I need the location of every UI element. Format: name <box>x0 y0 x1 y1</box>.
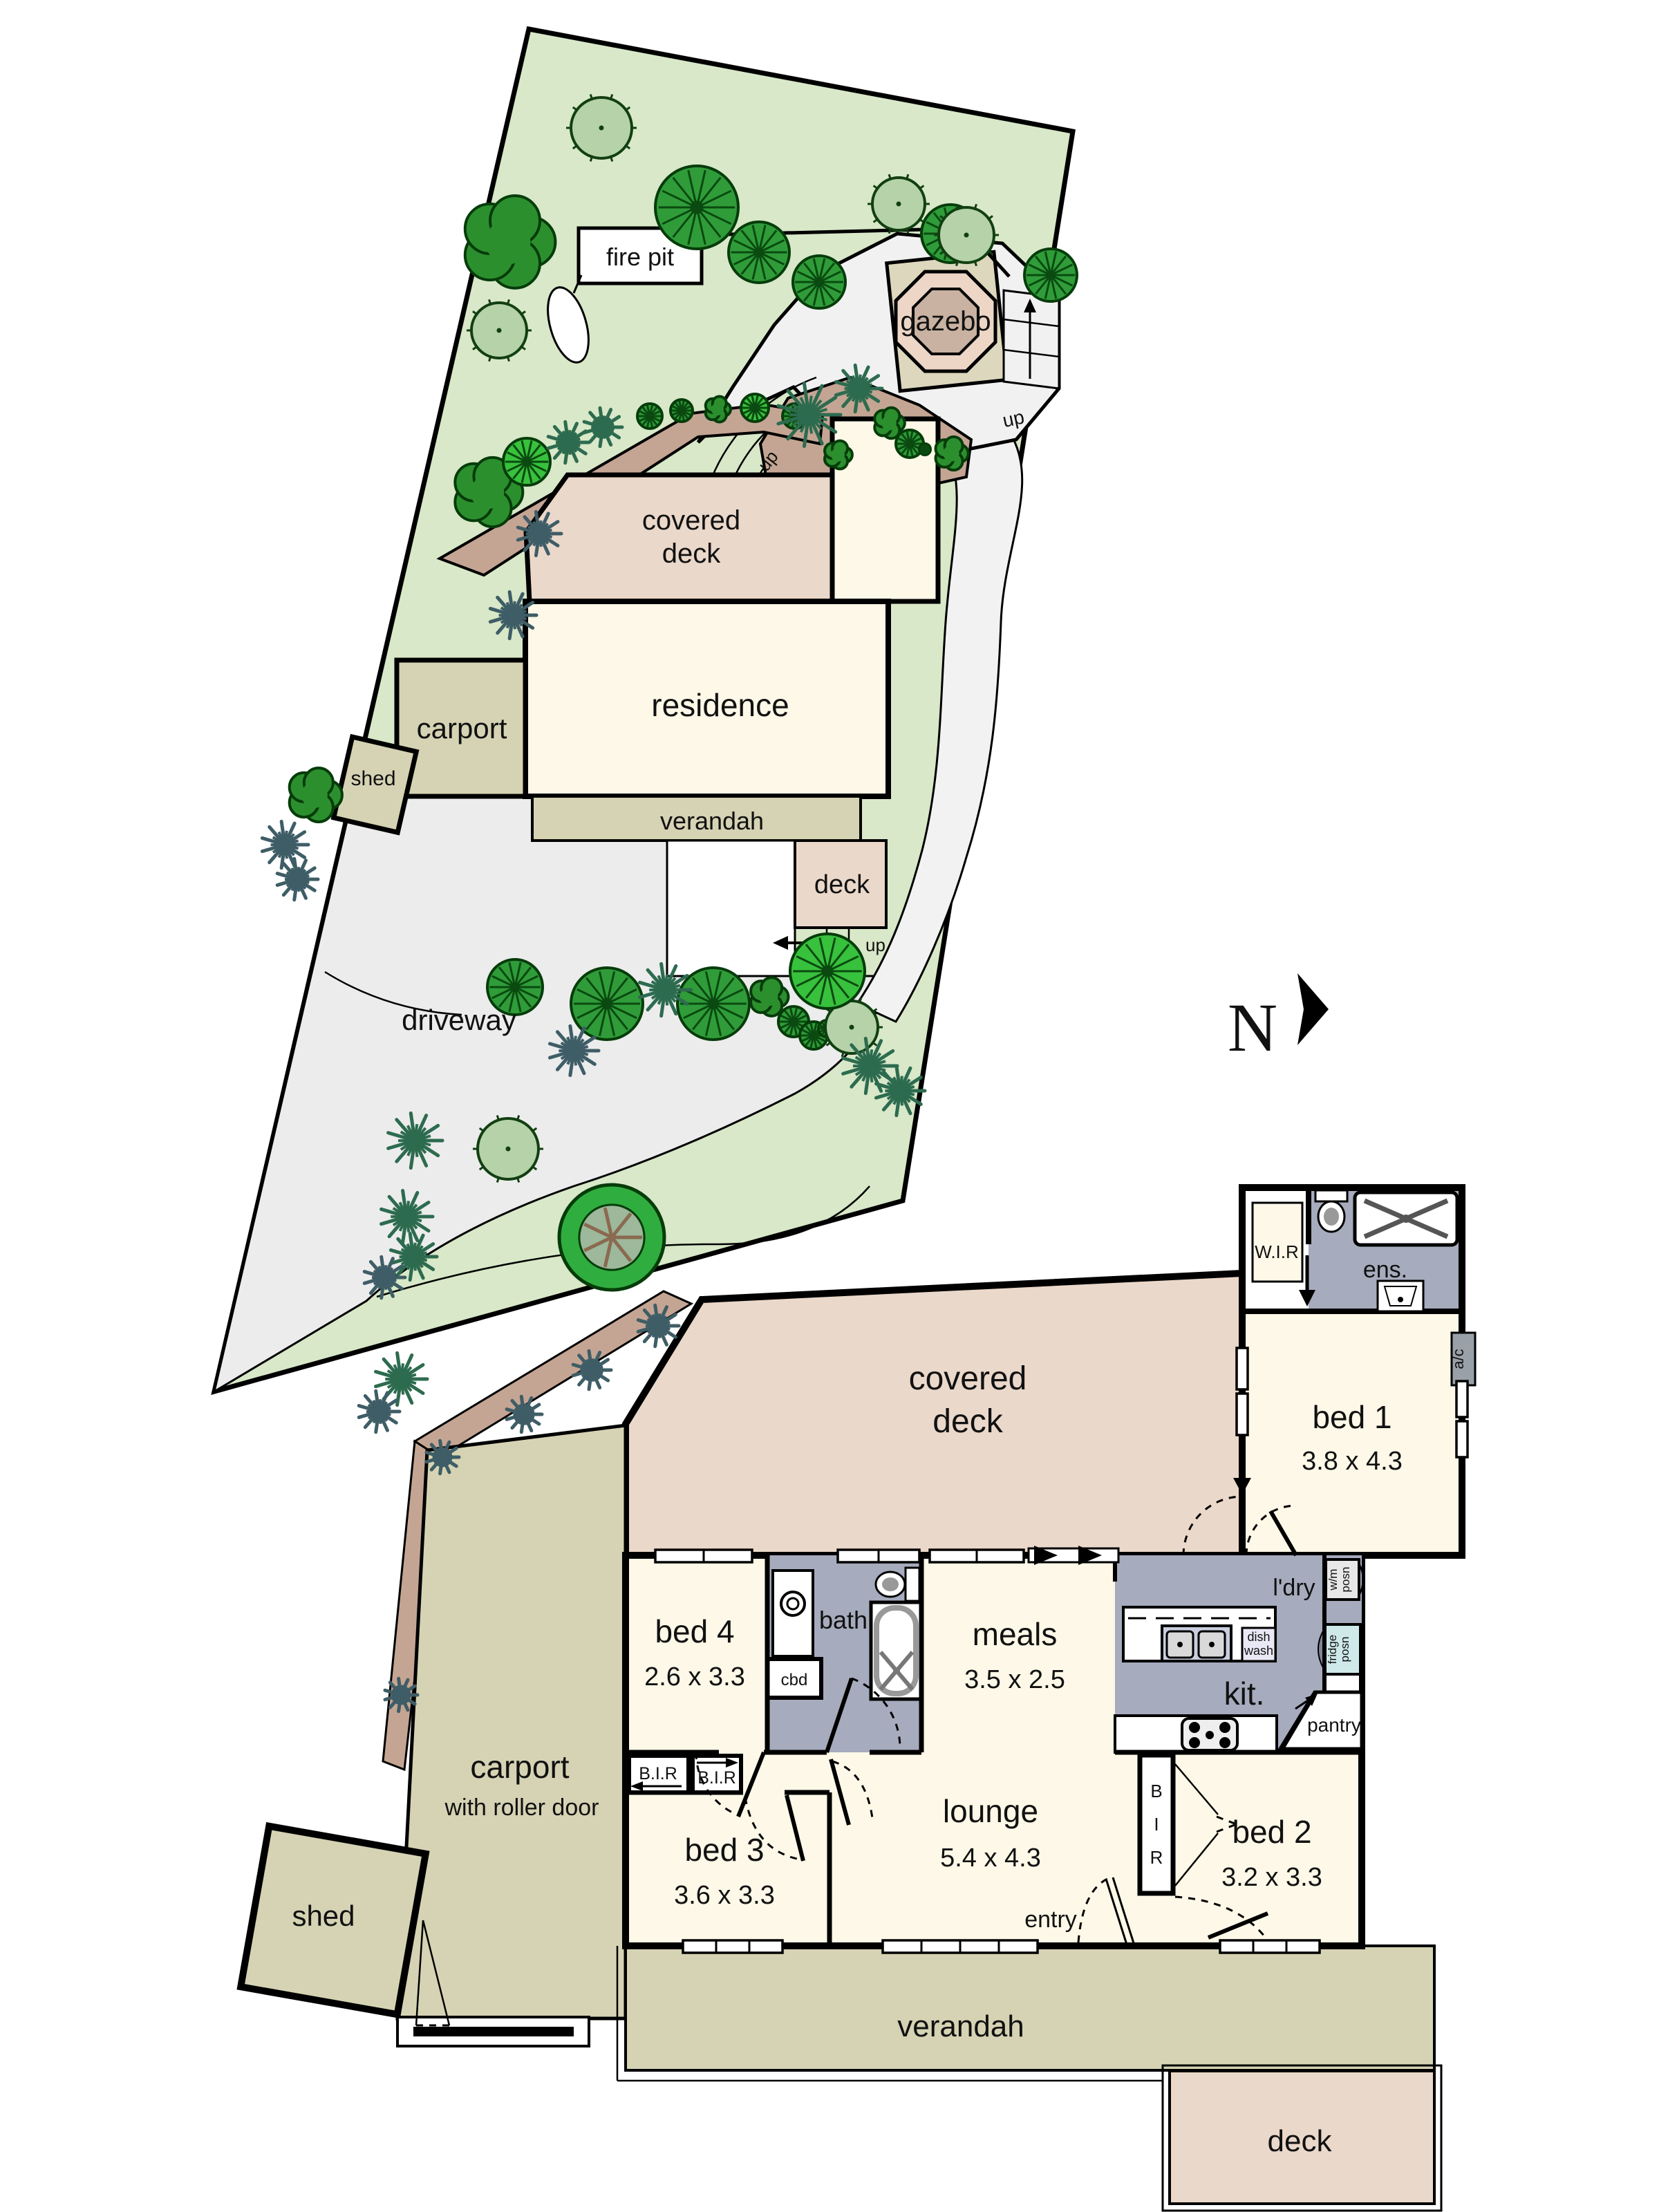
wm-label2: posn <box>1339 1567 1352 1593</box>
tree-icon <box>793 256 845 308</box>
north-indicator: N <box>1228 973 1329 1066</box>
bed3-label: bed 3 <box>684 1832 764 1868</box>
fp-covered-deck-label1: covered <box>909 1360 1027 1397</box>
up-deck-label: up <box>865 935 885 955</box>
bath-label: bath <box>819 1606 868 1634</box>
ac-label: a/c <box>1450 1349 1467 1369</box>
site-shed-label: shed <box>350 767 395 790</box>
roller-door <box>397 2017 589 2046</box>
tree-icon <box>825 441 852 469</box>
window-icon <box>1237 1348 1248 1389</box>
fridge-label2: posn <box>1338 1637 1351 1662</box>
stove-bench <box>1115 1716 1277 1752</box>
floorplan-page: fire pit gazebo up up covered deck resid… <box>0 0 1659 2212</box>
tree-icon <box>262 821 308 868</box>
wir-label: W.I.R <box>1255 1241 1299 1262</box>
tree-icon <box>1024 249 1077 301</box>
tree-icon <box>559 1185 664 1290</box>
bed2-label: bed 2 <box>1232 1814 1311 1850</box>
tree-icon <box>671 400 693 422</box>
window-icon <box>1237 1394 1248 1435</box>
bed2-dims: 3.2 x 3.3 <box>1221 1863 1322 1892</box>
ldry-label: l'dry <box>1273 1575 1315 1601</box>
tree-icon <box>706 396 731 422</box>
tree-icon <box>655 166 738 249</box>
floor-plan: covered deck W.I.R ens. bed 1 3.8 x 4.3 … <box>241 1188 1475 2211</box>
window-icon <box>930 1550 1024 1562</box>
dish-label2: wash <box>1244 1644 1273 1658</box>
site-covered-deck-label2: deck <box>662 538 721 569</box>
site-plan: fire pit gazebo up up covered deck resid… <box>214 29 1077 1432</box>
tree-icon <box>503 438 550 485</box>
bir-v2: I <box>1154 1814 1159 1835</box>
window-icon <box>1456 1421 1468 1457</box>
plan-canvas: fire pit gazebo up up covered deck resid… <box>0 0 1659 2212</box>
tree-icon <box>919 444 930 455</box>
bir-v3: R <box>1150 1847 1163 1868</box>
north-arrow-icon <box>1297 973 1329 1045</box>
tree-icon <box>277 859 318 899</box>
bed3-dims: 3.6 x 3.3 <box>674 1881 775 1910</box>
shower-icon <box>1355 1192 1457 1245</box>
site-covered-deck-label1: covered <box>642 505 740 536</box>
meals-dims: 3.5 x 2.5 <box>964 1665 1065 1694</box>
window-icon <box>883 1940 1038 1953</box>
fire-pit-label: fire pit <box>606 243 674 271</box>
up-gazebo-label: up <box>1001 406 1027 431</box>
bed1-label: bed 1 <box>1312 1399 1391 1435</box>
gazebo-stairs <box>1004 290 1059 388</box>
gazebo-label: gazebo <box>900 306 991 337</box>
ens-label: ens. <box>1363 1257 1407 1283</box>
bed4-label: bed 4 <box>655 1613 734 1649</box>
tree-icon <box>790 934 865 1009</box>
site-verandah-label: verandah <box>660 807 764 835</box>
fp-deck-label: deck <box>1268 2124 1333 2158</box>
fp-verandah-label: verandah <box>897 2009 1024 2043</box>
meals-label: meals <box>973 1616 1058 1652</box>
wm-label1: w/m <box>1327 1568 1340 1591</box>
site-deck-label: deck <box>814 870 870 899</box>
fridge-label1: fridge <box>1326 1635 1339 1665</box>
kit-label: kit. <box>1224 1676 1265 1712</box>
driveway-label: driveway <box>402 1004 516 1036</box>
cbd-label: cbd <box>781 1671 808 1689</box>
bed1-dims: 3.8 x 4.3 <box>1302 1447 1403 1476</box>
lounge-dims: 5.4 x 4.3 <box>940 1844 1041 1873</box>
north-label: N <box>1228 989 1277 1066</box>
fp-carport-sub: with roller door <box>444 1794 599 1821</box>
fp-covered-deck-label2: deck <box>932 1403 1003 1440</box>
fp-shed-label: shed <box>292 1900 355 1932</box>
vanity-icon-ens <box>1378 1281 1423 1311</box>
window-icon <box>655 1550 752 1562</box>
tree-icon <box>637 404 662 429</box>
bathtub-icon <box>871 1602 921 1699</box>
lounge-label: lounge <box>943 1793 1038 1829</box>
vanity-icon-bath <box>773 1571 813 1656</box>
tree-icon <box>729 222 789 283</box>
tree-icon <box>359 1391 400 1432</box>
sliding-door <box>1029 1546 1118 1565</box>
window-icon <box>683 1940 782 1953</box>
entry-label: entry <box>1024 1906 1077 1933</box>
bed4-dims: 2.6 x 3.3 <box>644 1662 745 1691</box>
site-carport-label: carport <box>417 712 507 744</box>
site-porch <box>667 841 795 976</box>
bir-v1: B <box>1150 1781 1162 1801</box>
tree-icon <box>571 968 643 1040</box>
site-residence-label: residence <box>651 687 789 723</box>
fp-carport-label: carport <box>470 1749 569 1785</box>
window-icon <box>1220 1940 1320 1953</box>
dish-label1: dish <box>1247 1630 1270 1644</box>
fp-verandah <box>626 1946 1434 2070</box>
window-icon <box>838 1550 919 1562</box>
pantry-label: pantry <box>1307 1714 1361 1736</box>
fp-carport <box>397 1425 626 2018</box>
tree-icon <box>741 394 769 422</box>
bir1-label: B.I.R <box>639 1764 677 1783</box>
window-icon <box>1456 1381 1468 1417</box>
bir2-label: B.I.R <box>697 1768 736 1788</box>
toilet-icon-ens <box>1315 1190 1347 1232</box>
